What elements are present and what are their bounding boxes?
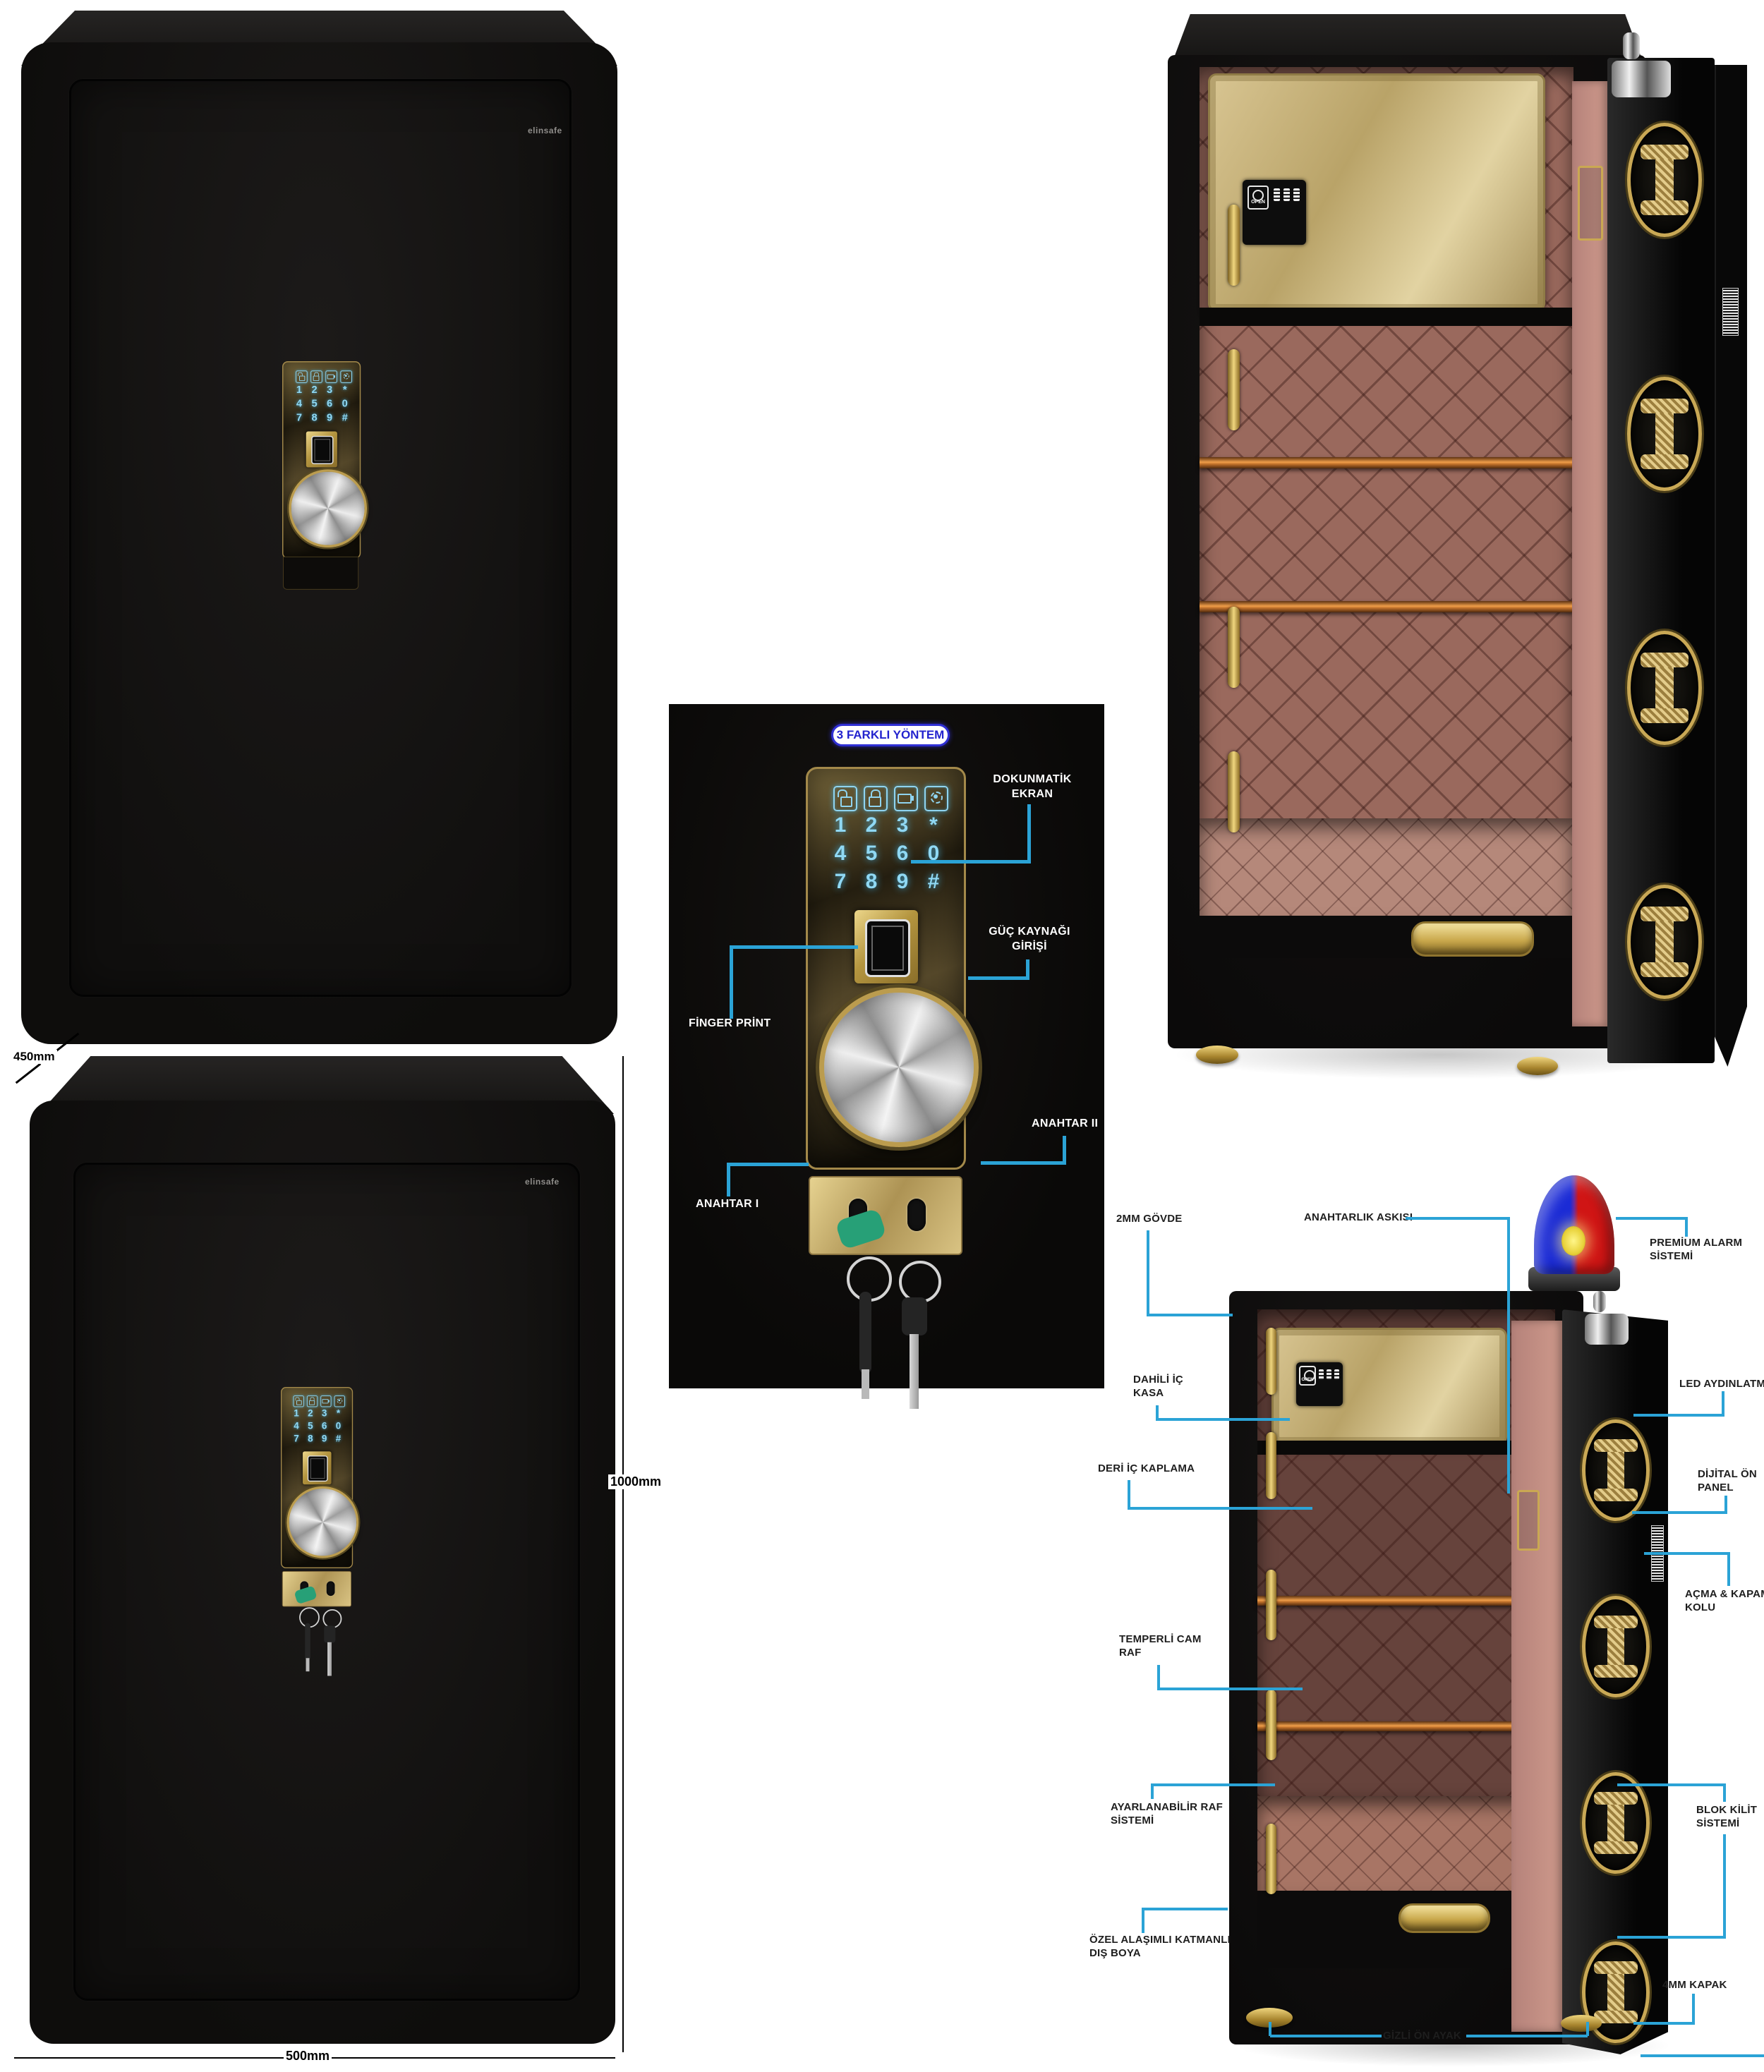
keypad-key: 7 xyxy=(296,412,302,424)
keypad-key: 9 xyxy=(327,412,332,424)
label-line: DIŞ BOYA xyxy=(1089,1947,1141,1959)
label-line: BLOK KİLİT xyxy=(1696,1804,1757,1816)
label-line: PREMİUM ALARM xyxy=(1650,1237,1742,1249)
callout-line xyxy=(1616,1217,1686,1220)
fingerprint-window xyxy=(865,919,910,977)
keypad-key: 8 xyxy=(308,1434,313,1444)
door-bolt-medallion xyxy=(1582,1596,1650,1697)
keypad-key: 8 xyxy=(311,412,317,424)
medallion-core xyxy=(1655,907,1674,977)
key-plate xyxy=(282,1571,351,1606)
callout-line xyxy=(1027,804,1031,863)
door-bolt-medallion xyxy=(1627,377,1702,491)
combination-dial xyxy=(1334,1369,1339,1380)
combination-dial xyxy=(1274,188,1280,201)
callout-touch-screen: DOKUNMATİK EKRAN xyxy=(982,772,1082,801)
door-bolt-medallion xyxy=(1627,123,1702,237)
callout-line-1: DOKUNMATİK xyxy=(993,773,1071,785)
label-adjustable-shelf: AYARLANABİLİR RAF SİSTEMİ xyxy=(1111,1800,1223,1827)
callout-line xyxy=(730,945,858,949)
door-inner-leather xyxy=(1511,1321,1564,2032)
callout-line xyxy=(1157,1665,1160,1690)
callout-line xyxy=(1466,2035,1588,2037)
callout-line xyxy=(911,860,1031,864)
glass-shelf-edge xyxy=(1200,601,1573,612)
callout-line xyxy=(727,1163,809,1166)
label-led-lighting: LED AYDINLATMA xyxy=(1679,1377,1764,1391)
callout-line xyxy=(1142,1908,1228,1910)
hinge-barrel xyxy=(1585,1314,1629,1345)
frame-bolt xyxy=(1266,1690,1276,1760)
callout-line xyxy=(1269,2022,1271,2036)
lock-icon xyxy=(307,1395,318,1407)
keypad-key: 1 xyxy=(294,1408,299,1419)
callout-line xyxy=(730,945,733,1019)
label-line: AÇMA & KAPAMA xyxy=(1685,1588,1764,1600)
medallion-core xyxy=(1607,1961,1624,2023)
interior-floor xyxy=(1200,818,1573,921)
callout-line xyxy=(1147,1230,1149,1316)
key-tip xyxy=(306,1658,310,1671)
keypad-key: 0 xyxy=(336,1421,342,1431)
keypad-key: 5 xyxy=(866,842,878,866)
key xyxy=(910,1334,919,1409)
safe-foot xyxy=(1196,1046,1238,1064)
callout-line xyxy=(1128,1507,1312,1510)
label-line: TEMPERLİ CAM xyxy=(1119,1633,1202,1645)
unlock-icon xyxy=(294,1395,304,1407)
callout-line xyxy=(1644,1552,1730,1555)
lock-knob xyxy=(289,469,367,547)
inner-safe-box: OPEN xyxy=(1208,73,1545,312)
lock-icon xyxy=(310,370,322,383)
open-dial-icon: OPEN xyxy=(1248,186,1269,210)
key-cover xyxy=(283,557,358,590)
label-door-4mm: 4MM KAPAK xyxy=(1662,1978,1727,1992)
battery-low-icon xyxy=(894,786,918,811)
callout-line xyxy=(1617,1936,1726,1939)
brand-logo: elinsafe xyxy=(525,1177,560,1187)
keypad-key: 7 xyxy=(294,1434,299,1444)
inner-safe-keypad: OPEN xyxy=(1243,180,1306,245)
door-bolt-medallion xyxy=(1582,1772,1650,1874)
key xyxy=(327,1642,332,1676)
interior-floor xyxy=(1257,1796,1555,1895)
alarm-dome xyxy=(1534,1175,1614,1274)
callout-line xyxy=(1632,1511,1727,1514)
glass-shelf-edge xyxy=(1200,457,1573,468)
label-hidden-front-foot: GİZLİ ÖN AYAK xyxy=(1383,2029,1461,2042)
label-block-lock-system: BLOK KİLİT SİSTEMİ xyxy=(1696,1803,1757,1830)
methods-header: 3 FARKLI YÖNTEM xyxy=(831,724,950,746)
label-line: RAF xyxy=(1119,1647,1141,1659)
callout-key-1: ANAHTAR I xyxy=(696,1196,759,1211)
callout-line xyxy=(1724,1496,1727,1513)
key-plate xyxy=(809,1176,962,1255)
key-head xyxy=(324,1625,335,1642)
keypad-key: 1 xyxy=(296,384,302,396)
hinge-barrel xyxy=(1612,61,1671,97)
label-line: KASA xyxy=(1133,1387,1164,1399)
safe-foot xyxy=(1517,1057,1558,1075)
lock-knob xyxy=(287,1486,359,1558)
serial-barcode xyxy=(1722,288,1739,336)
keypad-key: 8 xyxy=(866,870,878,894)
medallion-core xyxy=(1655,653,1674,723)
label-line: SİSTEMİ xyxy=(1650,1250,1693,1262)
safe-foot xyxy=(1561,2015,1602,2032)
callout-line xyxy=(968,976,1029,980)
lock-icon xyxy=(864,786,888,811)
keyring-hook xyxy=(1578,166,1603,241)
keyring-hook xyxy=(1517,1490,1540,1551)
touch-keypad: 123* 4560 789# xyxy=(825,811,949,896)
frame-bolt xyxy=(1228,205,1240,286)
callout-line xyxy=(1722,1391,1724,1415)
sill-handle-recess xyxy=(1398,1903,1490,1933)
label-line: AYARLANABİLİR RAF xyxy=(1111,1801,1223,1813)
label-line: 4MM KAPAK xyxy=(1662,1979,1727,1991)
label-line: KOLU xyxy=(1685,1601,1715,1613)
medallion-core xyxy=(1655,145,1674,215)
callout-line xyxy=(1142,1908,1144,1933)
keypad-key: 1 xyxy=(835,813,847,837)
label-line: PANEL xyxy=(1698,1482,1734,1494)
keypad-key: * xyxy=(929,813,938,837)
callout-line xyxy=(1507,1217,1510,1494)
inner-box-shelf xyxy=(1200,308,1573,326)
combination-dial xyxy=(1327,1369,1331,1380)
callout-line xyxy=(1586,2022,1589,2036)
combination-dial xyxy=(1283,188,1290,201)
lock-panel: 123* 4560 789# xyxy=(281,1387,351,1673)
keypad-key: * xyxy=(337,1408,340,1419)
key-tip xyxy=(862,1369,869,1399)
callout-line xyxy=(1633,1414,1724,1417)
fingerprint-reader xyxy=(854,910,918,983)
label-line: DERİ İÇ KAPLAMA xyxy=(1098,1462,1195,1474)
callout-line xyxy=(1406,1217,1509,1220)
fingerprint-window xyxy=(311,436,333,464)
keypad-key: 3 xyxy=(322,1408,327,1419)
height-dimension-line xyxy=(622,1056,624,2052)
keypad-key: 9 xyxy=(897,870,909,894)
medallion-core xyxy=(1655,399,1674,469)
battery-low-icon xyxy=(320,1395,331,1407)
callout-line xyxy=(1633,2022,1695,2025)
keypad-key: 2 xyxy=(866,813,878,837)
lock-knob xyxy=(819,988,979,1147)
callout-line-2: GİRİŞİ xyxy=(1012,940,1047,952)
key-head xyxy=(902,1297,927,1335)
callout-line xyxy=(1147,1314,1233,1316)
label-digital-front-panel: DİJİTAL ÖN PANEL xyxy=(1698,1467,1757,1494)
battery-low-icon xyxy=(325,370,337,383)
callout-line xyxy=(1063,1136,1066,1164)
label-tempered-glass-shelf: TEMPERLİ CAM RAF xyxy=(1119,1632,1202,1659)
keypad-key: 3 xyxy=(897,813,909,837)
label-line: LED AYDINLATMA xyxy=(1679,1378,1764,1390)
inner-safe-box: OPEN xyxy=(1271,1328,1507,1445)
depth-dimension-line xyxy=(16,1063,42,1084)
settings-gear-icon xyxy=(924,786,948,811)
keypad-key: 4 xyxy=(835,842,847,866)
keypad-key: * xyxy=(343,384,347,396)
touch-keypad: 123* 4560 789# xyxy=(289,1407,345,1445)
frame-bolt xyxy=(1228,751,1240,832)
keypad-key: 6 xyxy=(322,1421,327,1431)
key xyxy=(305,1623,310,1660)
door-bolt-medallion xyxy=(1627,885,1702,999)
keyhole xyxy=(907,1199,926,1231)
fingerprint-window xyxy=(308,1455,328,1482)
keyhole xyxy=(327,1581,335,1596)
keypad-key: 2 xyxy=(311,384,317,396)
callout-line xyxy=(1641,2054,1764,2057)
lock-panel-frame: 123* 4560 789# xyxy=(281,1387,353,1568)
callout-line xyxy=(1156,1418,1290,1421)
label-line: SİSTEMİ xyxy=(1111,1814,1154,1826)
lock-panel: 123* 4560 789# xyxy=(282,361,358,672)
sill-handle-recess xyxy=(1411,921,1534,957)
hinge-pin xyxy=(1593,1291,1606,1312)
inner-box-shelf xyxy=(1257,1441,1555,1455)
label-inner-safe: DAHİLİ İÇ KASA xyxy=(1133,1373,1183,1400)
key-ring xyxy=(899,1261,941,1303)
medallion-core xyxy=(1607,1792,1624,1854)
callout-line xyxy=(1692,1994,1695,2023)
label-alloy-paint: ÖZEL ALAŞIMLI KATMANLI DIŞ BOYA xyxy=(1089,1933,1231,1960)
frame-bolt xyxy=(1228,349,1240,430)
door-bolt-medallion xyxy=(1582,1419,1650,1521)
keypad-key: # xyxy=(342,412,348,424)
keypad-key: 5 xyxy=(308,1421,313,1431)
unlock-icon xyxy=(833,786,857,811)
combination-dial xyxy=(1293,188,1300,201)
label-keyring-hook: ANAHTARLIK ASKISI xyxy=(1304,1211,1413,1224)
glass-shelf-edge xyxy=(1257,1721,1555,1731)
lock-panel-frame: 123* 4560 789# xyxy=(806,767,966,1170)
brand-logo: elinsafe xyxy=(528,126,562,135)
frame-bolt xyxy=(1266,1570,1276,1640)
callout-line xyxy=(727,1163,730,1196)
label-premium-alarm: PREMİUM ALARM SİSTEMİ xyxy=(1650,1236,1742,1263)
door-bolt-medallion xyxy=(1627,631,1702,745)
callout-line xyxy=(1727,1552,1730,1586)
label-line: 2MM GÖVDE xyxy=(1116,1213,1182,1225)
door-edge xyxy=(1715,65,1747,1067)
callout-line xyxy=(1723,1834,1726,1937)
label-line: SİSTEMİ xyxy=(1696,1817,1739,1829)
callout-line xyxy=(1151,1783,1275,1786)
callout-line xyxy=(981,1161,1066,1165)
open-dial-icon: OPEN xyxy=(1299,1366,1316,1386)
height-dimension: 1000mm xyxy=(608,1474,663,1489)
fingerprint-reader xyxy=(306,431,337,467)
fingerprint-reader xyxy=(303,1451,332,1484)
keypad-key: 4 xyxy=(294,1421,299,1431)
medallion-core xyxy=(1607,1439,1624,1501)
callout-line-1: GÜÇ KAYNAĞI xyxy=(989,926,1070,938)
keypad-key: # xyxy=(928,870,940,894)
callout-line xyxy=(1270,2035,1382,2037)
callout-line xyxy=(1128,1480,1130,1510)
callout-line xyxy=(1685,1217,1688,1237)
unlock-icon xyxy=(296,370,308,383)
inner-safe-keypad: OPEN xyxy=(1296,1362,1343,1406)
combination-dial xyxy=(1319,1369,1324,1380)
frame-bolt xyxy=(1266,1328,1276,1395)
keypad-key: # xyxy=(336,1434,342,1444)
keypad-key: 7 xyxy=(835,870,847,894)
touch-keypad: 123* 4560 789# xyxy=(291,383,352,425)
settings-gear-icon xyxy=(340,370,352,383)
alarm-bulb xyxy=(1561,1226,1585,1256)
label-body-2mm: 2MM GÖVDE xyxy=(1116,1212,1182,1225)
width-dimension: 500mm xyxy=(284,2049,332,2064)
callout-key-2: ANAHTAR II xyxy=(1032,1116,1098,1131)
settings-gear-icon xyxy=(334,1395,345,1407)
label-open-close-handle: AÇMA & KAPAMA KOLU xyxy=(1685,1587,1764,1614)
lock-panel-frame: 123* 4560 789# xyxy=(282,361,361,559)
keypad-key: 9 xyxy=(322,1434,327,1444)
callout-line-2: EKRAN xyxy=(1012,788,1053,800)
frame-bolt xyxy=(1266,1824,1276,1894)
callout-line xyxy=(1723,1783,1726,1802)
label-line: DAHİLİ İÇ xyxy=(1133,1374,1183,1386)
keypad-key: 3 xyxy=(327,384,332,396)
hinge-pin xyxy=(1623,32,1640,59)
medallion-core xyxy=(1607,1616,1624,1678)
keypad-key: 6 xyxy=(327,398,332,410)
frame-bolt xyxy=(1228,607,1240,688)
callout-power-input: GÜÇ KAYNAĞI GİRİŞİ xyxy=(979,924,1080,954)
callout-line xyxy=(1157,1688,1303,1690)
depth-dimension: 450mm xyxy=(11,1050,57,1064)
frame-bolt xyxy=(1266,1432,1276,1499)
callout-line xyxy=(1151,1783,1154,1799)
keypad-key: 0 xyxy=(342,398,348,410)
keypad-key: 6 xyxy=(897,842,909,866)
keypad-key: 5 xyxy=(311,398,317,410)
key xyxy=(859,1292,871,1374)
keypad-key: 2 xyxy=(308,1408,313,1419)
label-leather-lining: DERİ İÇ KAPLAMA xyxy=(1098,1462,1195,1475)
callout-line xyxy=(1617,1783,1726,1786)
product-sheet: { "brand": {"logo_text": "elinsafe"}, "d… xyxy=(0,0,1764,2072)
label-line: DİJİTAL ÖN xyxy=(1698,1468,1757,1480)
glass-shelf-edge xyxy=(1257,1596,1555,1606)
keypad-key: 4 xyxy=(296,398,302,410)
label-line: ÖZEL ALAŞIMLI KATMANLI xyxy=(1089,1934,1231,1946)
